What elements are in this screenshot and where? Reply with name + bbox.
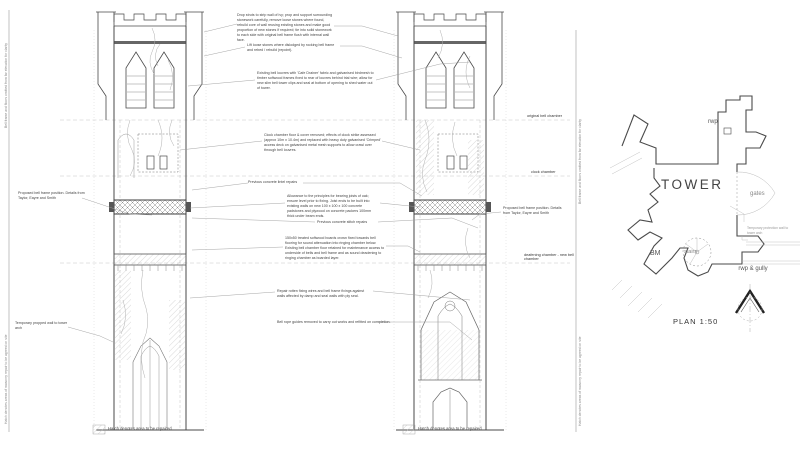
previous-repair-note-1: Previous concrete lintel repairs	[248, 180, 297, 185]
joist-note: Allowance to the principles for bearing …	[287, 194, 379, 219]
drawing-sheet: { "colors": {"ink": "#3a3a3a", "light_li…	[0, 0, 800, 450]
left-tower-section	[115, 28, 185, 428]
plan-gates-label: gates	[750, 191, 765, 197]
previous-repair-note-2: Previous concrete stitch repairs	[317, 220, 367, 225]
tower-arch-note: Temporary propped wall to tower arch	[15, 321, 70, 331]
plan-protection-note: Temporary protection wall to tower arch	[747, 226, 789, 235]
plan-drawing	[610, 96, 800, 332]
plan-rwp-label: rwp	[708, 119, 718, 125]
plan-stairs-label: stairs	[684, 249, 697, 255]
plan-rwp-gully-label: rwp & gully	[736, 266, 770, 272]
bell-ropes-note: Bell rope guides removed to carry out wo…	[277, 320, 390, 325]
lift-stones-note: Lift loose stones where dislodged by roc…	[247, 43, 339, 53]
hatch-legend-note-right: Hatch denotes area to be repaired	[418, 426, 482, 431]
level-label-original-bell-chamber: original bell chamber	[527, 114, 562, 118]
clock-floor-note: Clock chamber floor & cover removed; eff…	[264, 133, 381, 153]
floor-boards-note: 150x50 treated softwood boards crown fix…	[285, 236, 385, 261]
margin-note-right-bottom: Hatch denotes areas of masonry repair to…	[578, 336, 582, 426]
level-label-deafening-chamber: deafening chamber - new bell chamber	[524, 253, 582, 261]
north-arrow	[736, 284, 764, 332]
bell-frame-note-right: Proposed bell frame position. Details fr…	[503, 206, 567, 216]
hatch-legend-note-left: Hatch denotes area to be repaired	[108, 426, 172, 431]
plan-tower-title: TOWER	[661, 177, 724, 192]
level-label-clock-chamber: clock chamber	[531, 170, 555, 174]
margin-note-left-top: Bell frame and floors omitted from far e…	[4, 43, 8, 128]
plan-bm-label: BM	[650, 250, 661, 257]
margin-note-left-bottom: Hatch denotes areas of masonry repair to…	[4, 334, 8, 424]
sheet-svg	[0, 0, 800, 450]
damp-repair-note: Repair rotten fixing wires and bell fram…	[277, 289, 372, 299]
bell-frame-note-left: Proposed bell frame position. Details fr…	[18, 191, 88, 201]
top-repair-note: Drop struts to strip wall of ivy; prop a…	[237, 13, 333, 43]
louvre-note: Existing bell louvres with 'Cafe Drainer…	[257, 71, 375, 91]
plan-scale-label: PLAN 1:50	[673, 317, 718, 326]
margin-note-right-top: Bell frame and floors omitted from far e…	[578, 119, 582, 204]
